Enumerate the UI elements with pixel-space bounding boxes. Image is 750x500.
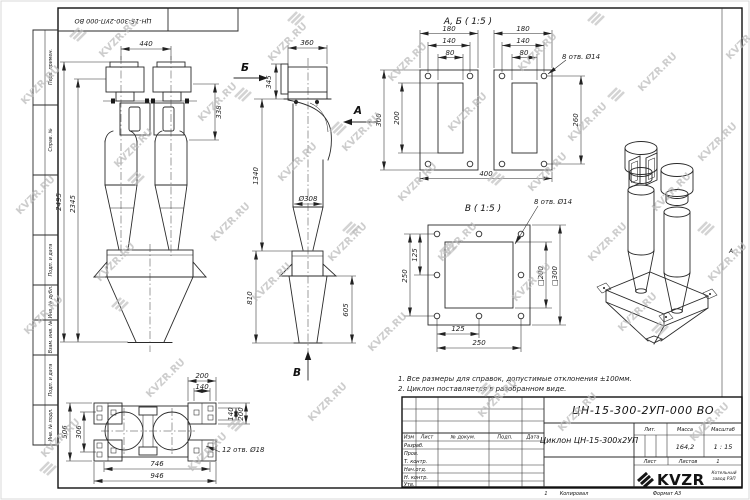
dim-label: 338	[215, 105, 223, 119]
margin-label: Подп. и дата	[48, 364, 54, 397]
watermark-text: KVZR.RU	[396, 161, 439, 204]
side-view: Ø308 360 345 1340 810 605 Б А В	[234, 39, 377, 380]
row-razrab: Разраб.	[404, 443, 424, 449]
dim-label: 125	[411, 248, 419, 262]
company-line-2: завод РЭП	[712, 476, 736, 482]
watermark-text: KVZR.RU	[724, 19, 750, 62]
section-ab-view: А, Б ( 1:5 ) 180 180 140 140 80 80 300	[375, 17, 600, 182]
scale-label: Масштаб	[711, 427, 735, 433]
doc-number-inverted: ЦН-15-300-2УП-000 ВО	[74, 17, 151, 25]
front-view: 440 338 2495 2345	[55, 40, 223, 352]
dim-label: 250	[472, 339, 486, 347]
part-name: Циклон ЦН-15-300х2УП	[540, 436, 638, 445]
sheets-label: Листов	[678, 459, 698, 465]
section-letter-b: Б	[241, 62, 249, 74]
watermark-text: KVZR.RU	[386, 41, 429, 84]
dim-label: 360	[300, 39, 314, 47]
watermark-text: KVZR.RU	[636, 51, 679, 94]
zone-letter: А	[728, 248, 733, 255]
dim-label: □300	[551, 265, 559, 286]
kvzr-logo-watermark-icon	[128, 172, 144, 185]
company-line-1: Котельный	[711, 470, 736, 476]
note-line-1: 1. Все размеры для справок, допустимые о…	[398, 375, 632, 383]
page-num: 1	[544, 491, 547, 497]
dim-label: 180	[442, 25, 456, 33]
col-data: Дата	[526, 435, 540, 441]
watermark-text: KVZR.RU	[326, 221, 369, 264]
dim-label: 260	[572, 113, 580, 127]
margin-label: Справ. №	[48, 128, 54, 151]
watermark-text: KVZR.RU	[19, 64, 62, 107]
dim-label: 140	[227, 407, 235, 421]
dim-label: 300	[375, 113, 383, 127]
notes: 1. Все размеры для справок, допустимые о…	[398, 375, 632, 393]
margin-label: Взам. инв. №	[48, 321, 54, 354]
lit-label: Лит.	[643, 427, 656, 433]
section-letter-a: А	[353, 105, 362, 117]
section-letter-v: В	[293, 367, 301, 379]
row-utv: Утв.	[404, 482, 415, 488]
kvzr-logo-watermark-icon	[330, 122, 346, 135]
kvzr-logo-watermark-icon	[608, 88, 624, 101]
top-doc-number-strip: ЦН-15-300-2УП-000 ВО	[58, 8, 238, 31]
dim-label: 440	[139, 40, 153, 48]
dim-label: 140	[195, 383, 209, 391]
dim-label: 306	[75, 425, 83, 439]
kvzr-logo-watermark-icon	[343, 222, 359, 235]
copier-label: Копировал	[560, 491, 589, 497]
dim-label: 200	[195, 372, 209, 380]
watermark-text: KVZR.RU	[476, 377, 519, 420]
holes-note: 8 отв. Ø14	[534, 198, 572, 206]
watermark-text: KVZR.RU	[250, 261, 293, 304]
dim-label: 140	[516, 37, 530, 45]
dim-label: 200	[237, 407, 245, 421]
watermark-text: KVZR.RU	[144, 357, 187, 400]
watermark-text: KVZR.RU	[94, 241, 137, 284]
dim-label: 810	[246, 291, 254, 305]
plan-view: 200 140 140 200 506 306 746 946 12 отв. …	[61, 372, 265, 484]
plan-corner-pads	[94, 403, 216, 461]
dim-label: 180	[516, 25, 530, 33]
isometric-view	[597, 142, 717, 345]
dim-label: 946	[150, 472, 164, 480]
dim-label: 250	[401, 269, 409, 283]
dim-label: 605	[342, 303, 350, 317]
dim-label: 140	[442, 37, 456, 45]
holes-note: 12 отв. Ø18	[222, 446, 265, 454]
kvzr-logo-watermark-icon	[112, 298, 128, 311]
scale-value: 1 : 15	[714, 443, 733, 451]
dim-label: 2345	[69, 195, 77, 213]
dim-label: 746	[150, 460, 164, 468]
col-list: Лист	[420, 435, 435, 441]
format-label: Формат А3	[653, 491, 681, 497]
kvzr-logo-watermark-icon	[288, 12, 304, 25]
watermark-text: KVZR.RU	[696, 121, 739, 164]
watermark-text: KVZR.RU	[526, 151, 569, 194]
left-margin-stamps: Перв. примен. Справ. № Подп. и дата Инв.…	[33, 30, 58, 445]
row-nkontr: Н. контр.	[404, 475, 428, 481]
watermark-text: KVZR.RU	[209, 201, 252, 244]
dim-label: 1340	[252, 167, 260, 185]
col-podp: Подп.	[497, 435, 512, 441]
dim-label: 2495	[55, 193, 63, 211]
kvzr-logo-watermark-icon	[588, 12, 604, 25]
watermark-text: KVZR.RU	[276, 141, 319, 184]
dim-label: Ø308	[298, 195, 318, 203]
col-ndocum: № докум.	[450, 435, 476, 441]
dim-label: 200	[393, 111, 401, 125]
margin-label: Инв. № подл.	[48, 408, 54, 441]
mass-value: 164,2	[676, 443, 695, 451]
sheet-label: Лист	[643, 459, 658, 465]
watermark-text: KVZR.RU	[510, 261, 553, 304]
logo-text: KVZR	[657, 471, 705, 489]
watermark-text: KVZR.RU	[14, 174, 57, 217]
row-tkontr: Т. контр.	[404, 459, 427, 465]
col-izm: Изм	[404, 435, 414, 441]
drawing-canvas: А Перв. примен. Справ. № Подп. и дата Ин…	[0, 0, 750, 500]
dim-label: 400	[479, 170, 493, 178]
watermark-text: KVZR.RU	[22, 294, 65, 337]
dim-label: 80	[520, 49, 529, 57]
kvzr-logo: KVZR	[638, 471, 705, 489]
mass-label: Масса	[677, 427, 693, 433]
watermark-text: KVZR.RU	[446, 91, 489, 134]
margin-label: Инв. № дубл.	[48, 286, 54, 319]
note-line-2: 2. Циклон поставляется в разобранном вид…	[398, 385, 566, 393]
dim-label: □200	[537, 265, 545, 286]
kvzr-logo-icon	[638, 473, 653, 487]
watermark-text: KVZR.RU	[436, 221, 479, 264]
doc-number: ЦН-15-300-2УП-000 ВО	[572, 404, 714, 417]
drawing-sheet: А Перв. примен. Справ. № Подп. и дата Ин…	[0, 0, 750, 500]
dim-label: 506	[61, 425, 69, 439]
kvzr-logo-watermark-icon	[70, 28, 86, 41]
section-v-title: В ( 1:5 )	[465, 204, 501, 214]
sheets-value: 1	[716, 459, 719, 465]
row-prov: Пров.	[404, 451, 419, 457]
watermark-text: KVZR.RU	[306, 381, 349, 424]
section-v-view: В ( 1:5 ) 250 125 125 250 □200 □300 8 от…	[401, 198, 572, 352]
dim-label: 80	[446, 49, 455, 57]
watermark-text: KVZR.RU	[366, 311, 409, 354]
kvzr-logo-watermark-icon	[40, 462, 56, 475]
title-block: Изм Лист № докум. Подп. Дата Разраб. Про…	[402, 397, 742, 497]
kvzr-logo-watermark-icon	[698, 222, 714, 235]
margin-label: Подп. и дата	[48, 244, 54, 277]
kvzr-logo-watermark-icon	[440, 243, 456, 256]
kvzr-logo-watermark-icon	[235, 88, 251, 101]
row-nachotd: Нач.отд.	[404, 467, 426, 473]
holes-note: 8 отв. Ø14	[562, 53, 600, 61]
dim-label: 345	[265, 75, 273, 89]
watermark-text: KVZR.RU	[586, 221, 629, 264]
dim-label: 125	[451, 325, 465, 333]
margin-label: Перв. примен.	[48, 49, 54, 85]
